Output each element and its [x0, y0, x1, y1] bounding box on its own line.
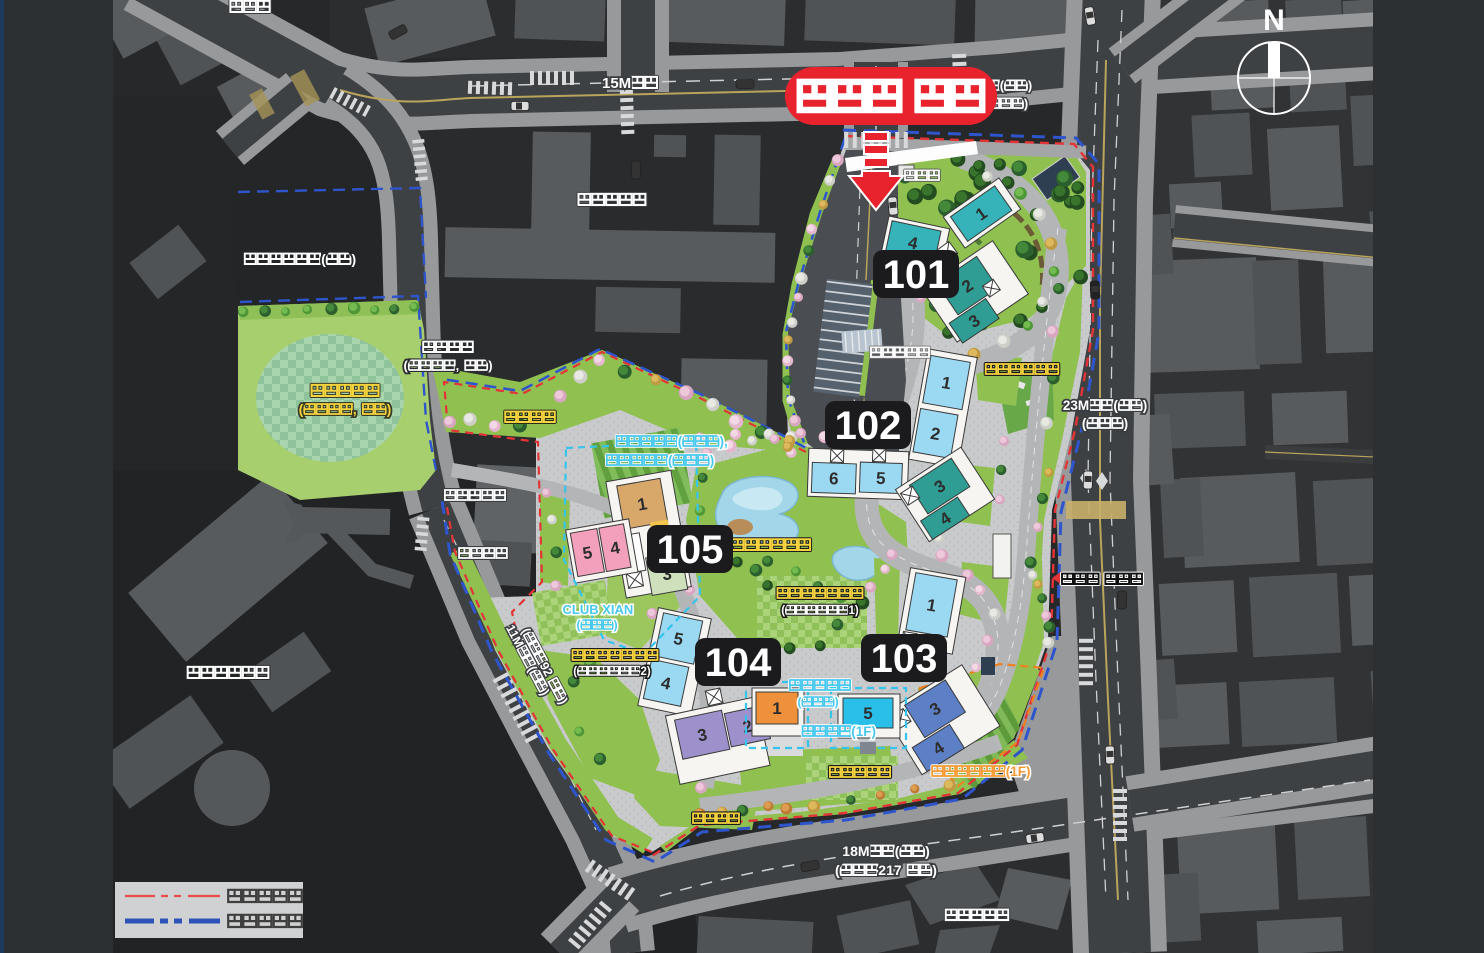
svg-text:): )	[1143, 398, 1148, 413]
svg-text:15M: 15M	[602, 75, 631, 92]
svg-text:(: (	[895, 843, 900, 859]
svg-text:18M: 18M	[842, 843, 869, 859]
svg-text:(: (	[781, 605, 785, 617]
svg-text:101: 101	[883, 253, 950, 297]
svg-text:(: (	[1113, 398, 1118, 413]
svg-text:(: (	[1000, 78, 1005, 93]
svg-text:(1F): (1F)	[1006, 764, 1031, 779]
svg-text:104: 104	[705, 641, 772, 685]
svg-text:102: 102	[835, 404, 902, 448]
svg-text:1): 1)	[849, 605, 859, 617]
svg-text:(: (	[321, 251, 326, 267]
svg-text:,: ,	[456, 358, 460, 373]
svg-text:6: 6	[829, 469, 839, 488]
svg-text:5: 5	[876, 469, 886, 488]
svg-text:): )	[488, 358, 492, 373]
svg-text:): )	[835, 695, 839, 709]
svg-text:,: ,	[353, 402, 357, 417]
svg-text:23M: 23M	[1063, 398, 1089, 413]
svg-text:1: 1	[772, 699, 781, 718]
svg-text:): )	[925, 843, 930, 859]
svg-text:(: (	[299, 402, 304, 417]
svg-text:103: 103	[871, 637, 938, 681]
svg-text:217: 217	[878, 862, 902, 878]
svg-text:(1F): (1F)	[851, 724, 876, 739]
svg-text:): )	[352, 251, 357, 267]
svg-text:): )	[1028, 78, 1032, 93]
svg-text:): )	[932, 862, 937, 878]
svg-text:): )	[1124, 416, 1129, 431]
svg-text:2): 2)	[641, 666, 651, 678]
svg-text:(: (	[798, 695, 802, 709]
svg-text:5: 5	[863, 704, 872, 723]
svg-text:): )	[387, 402, 392, 417]
svg-text:(: (	[577, 618, 581, 632]
svg-text:N: N	[1263, 4, 1285, 37]
svg-text:105: 105	[657, 528, 724, 572]
svg-text:(: (	[573, 666, 577, 678]
svg-text:),: ),	[720, 434, 728, 449]
svg-text:): )	[1024, 96, 1028, 111]
svg-text:(: (	[668, 453, 673, 468]
svg-text:(: (	[835, 862, 840, 878]
svg-text:CLUB XIAN: CLUB XIAN	[563, 602, 634, 617]
svg-text:): )	[710, 453, 715, 468]
svg-text:(: (	[404, 358, 409, 373]
svg-text:): )	[614, 618, 618, 632]
svg-text:(: (	[678, 434, 683, 449]
svg-text:(: (	[1082, 416, 1087, 431]
